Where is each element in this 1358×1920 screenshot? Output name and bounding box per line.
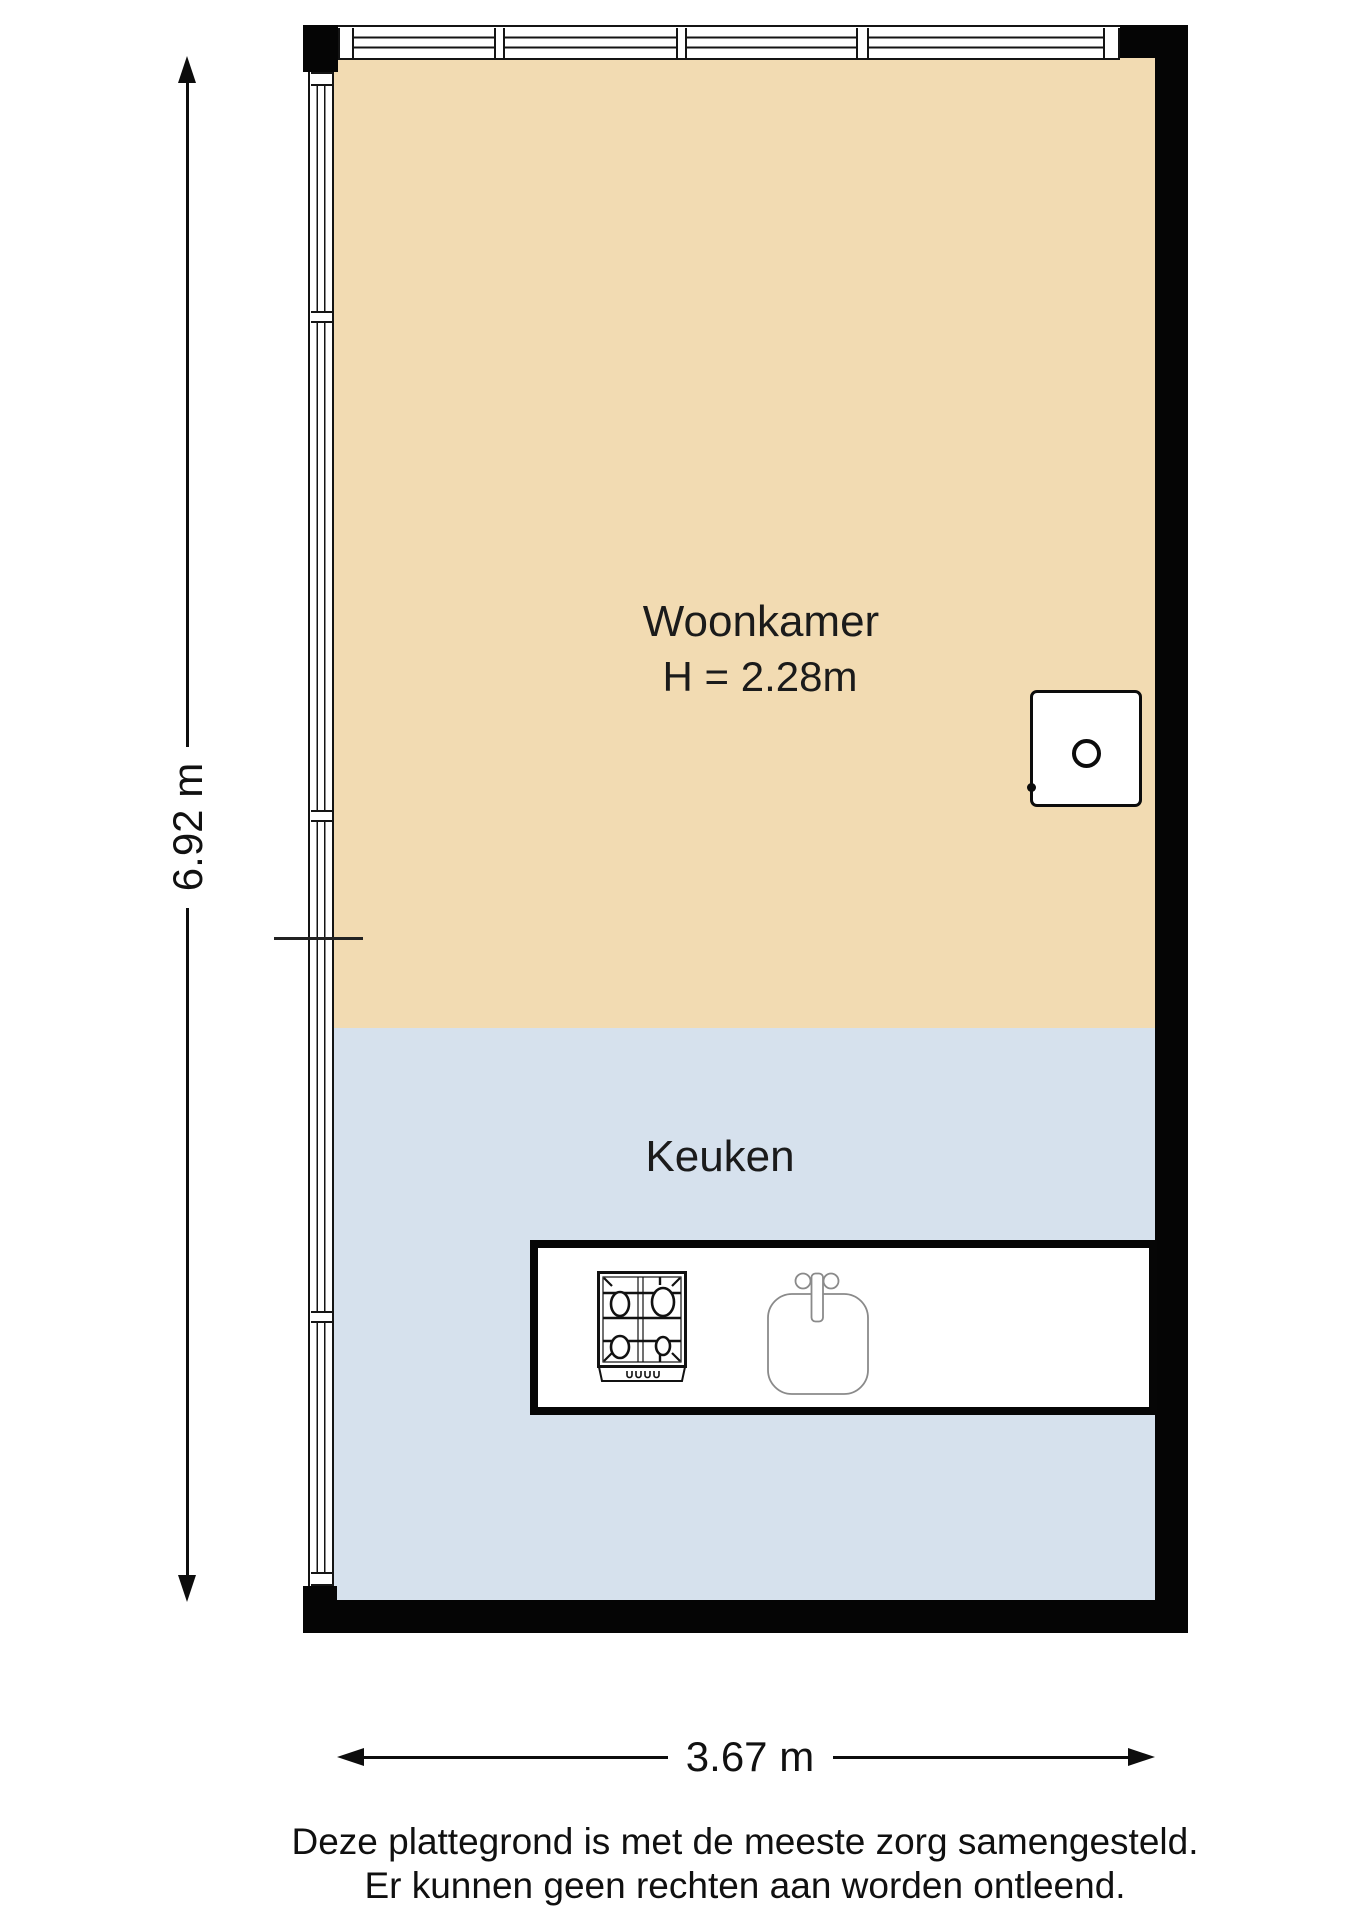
horizontal-dimension-line xyxy=(833,1756,1140,1759)
window-mullion xyxy=(676,28,687,58)
vertical-dimension-line xyxy=(186,78,189,747)
floorplan-canvas: Woonkamer H = 2.28m Keuken 6.92 m 3.67 m… xyxy=(0,0,1358,1920)
boiler-connection-dot xyxy=(1027,783,1036,792)
horizontal-dimension-line xyxy=(358,1756,668,1759)
disclaimer-line-2: Er kunnen geen rechten aan worden ontlee… xyxy=(292,1864,1199,1908)
wall-corner-top-left xyxy=(303,25,338,72)
wall-bottom xyxy=(337,1600,1188,1633)
window-mullion xyxy=(311,810,332,822)
window-mullion xyxy=(338,28,354,58)
window-mullion xyxy=(311,1311,332,1323)
keuken-label: Keuken xyxy=(645,1132,794,1182)
window-mullion xyxy=(311,311,332,323)
window-band-left xyxy=(308,72,334,1586)
window-mullion xyxy=(856,28,869,58)
sink-icon xyxy=(766,1270,870,1396)
woonkamer-room-area xyxy=(334,58,1155,1028)
window-mullion xyxy=(1103,28,1120,58)
window-band-top xyxy=(338,25,1120,60)
wall-corner-bottom-left xyxy=(303,1586,337,1633)
wall-right xyxy=(1155,25,1188,1633)
window-mullion xyxy=(311,1572,332,1586)
dimension-arrow-right-icon xyxy=(1128,1748,1155,1766)
vertical-dimension-label: 6.92 m xyxy=(164,763,212,891)
stove-icon xyxy=(597,1271,687,1383)
woonkamer-label: Woonkamer xyxy=(643,597,879,647)
horizontal-dimension-label: 3.67 m xyxy=(686,1733,814,1781)
disclaimer-line-1: Deze plattegrond is met de meeste zorg s… xyxy=(292,1820,1199,1864)
disclaimer-text: Deze plattegrond is met de meeste zorg s… xyxy=(292,1820,1199,1908)
boiler-flue-circle xyxy=(1072,739,1101,768)
dimension-arrow-down-icon xyxy=(178,1575,196,1602)
window-mullion xyxy=(311,72,332,86)
woonkamer-ceiling-height-label: H = 2.28m xyxy=(663,653,858,701)
boiler-icon xyxy=(1030,690,1142,807)
vertical-dimension-line xyxy=(186,908,189,1578)
window-mullion xyxy=(494,28,505,58)
wall-section-tick xyxy=(274,937,363,940)
